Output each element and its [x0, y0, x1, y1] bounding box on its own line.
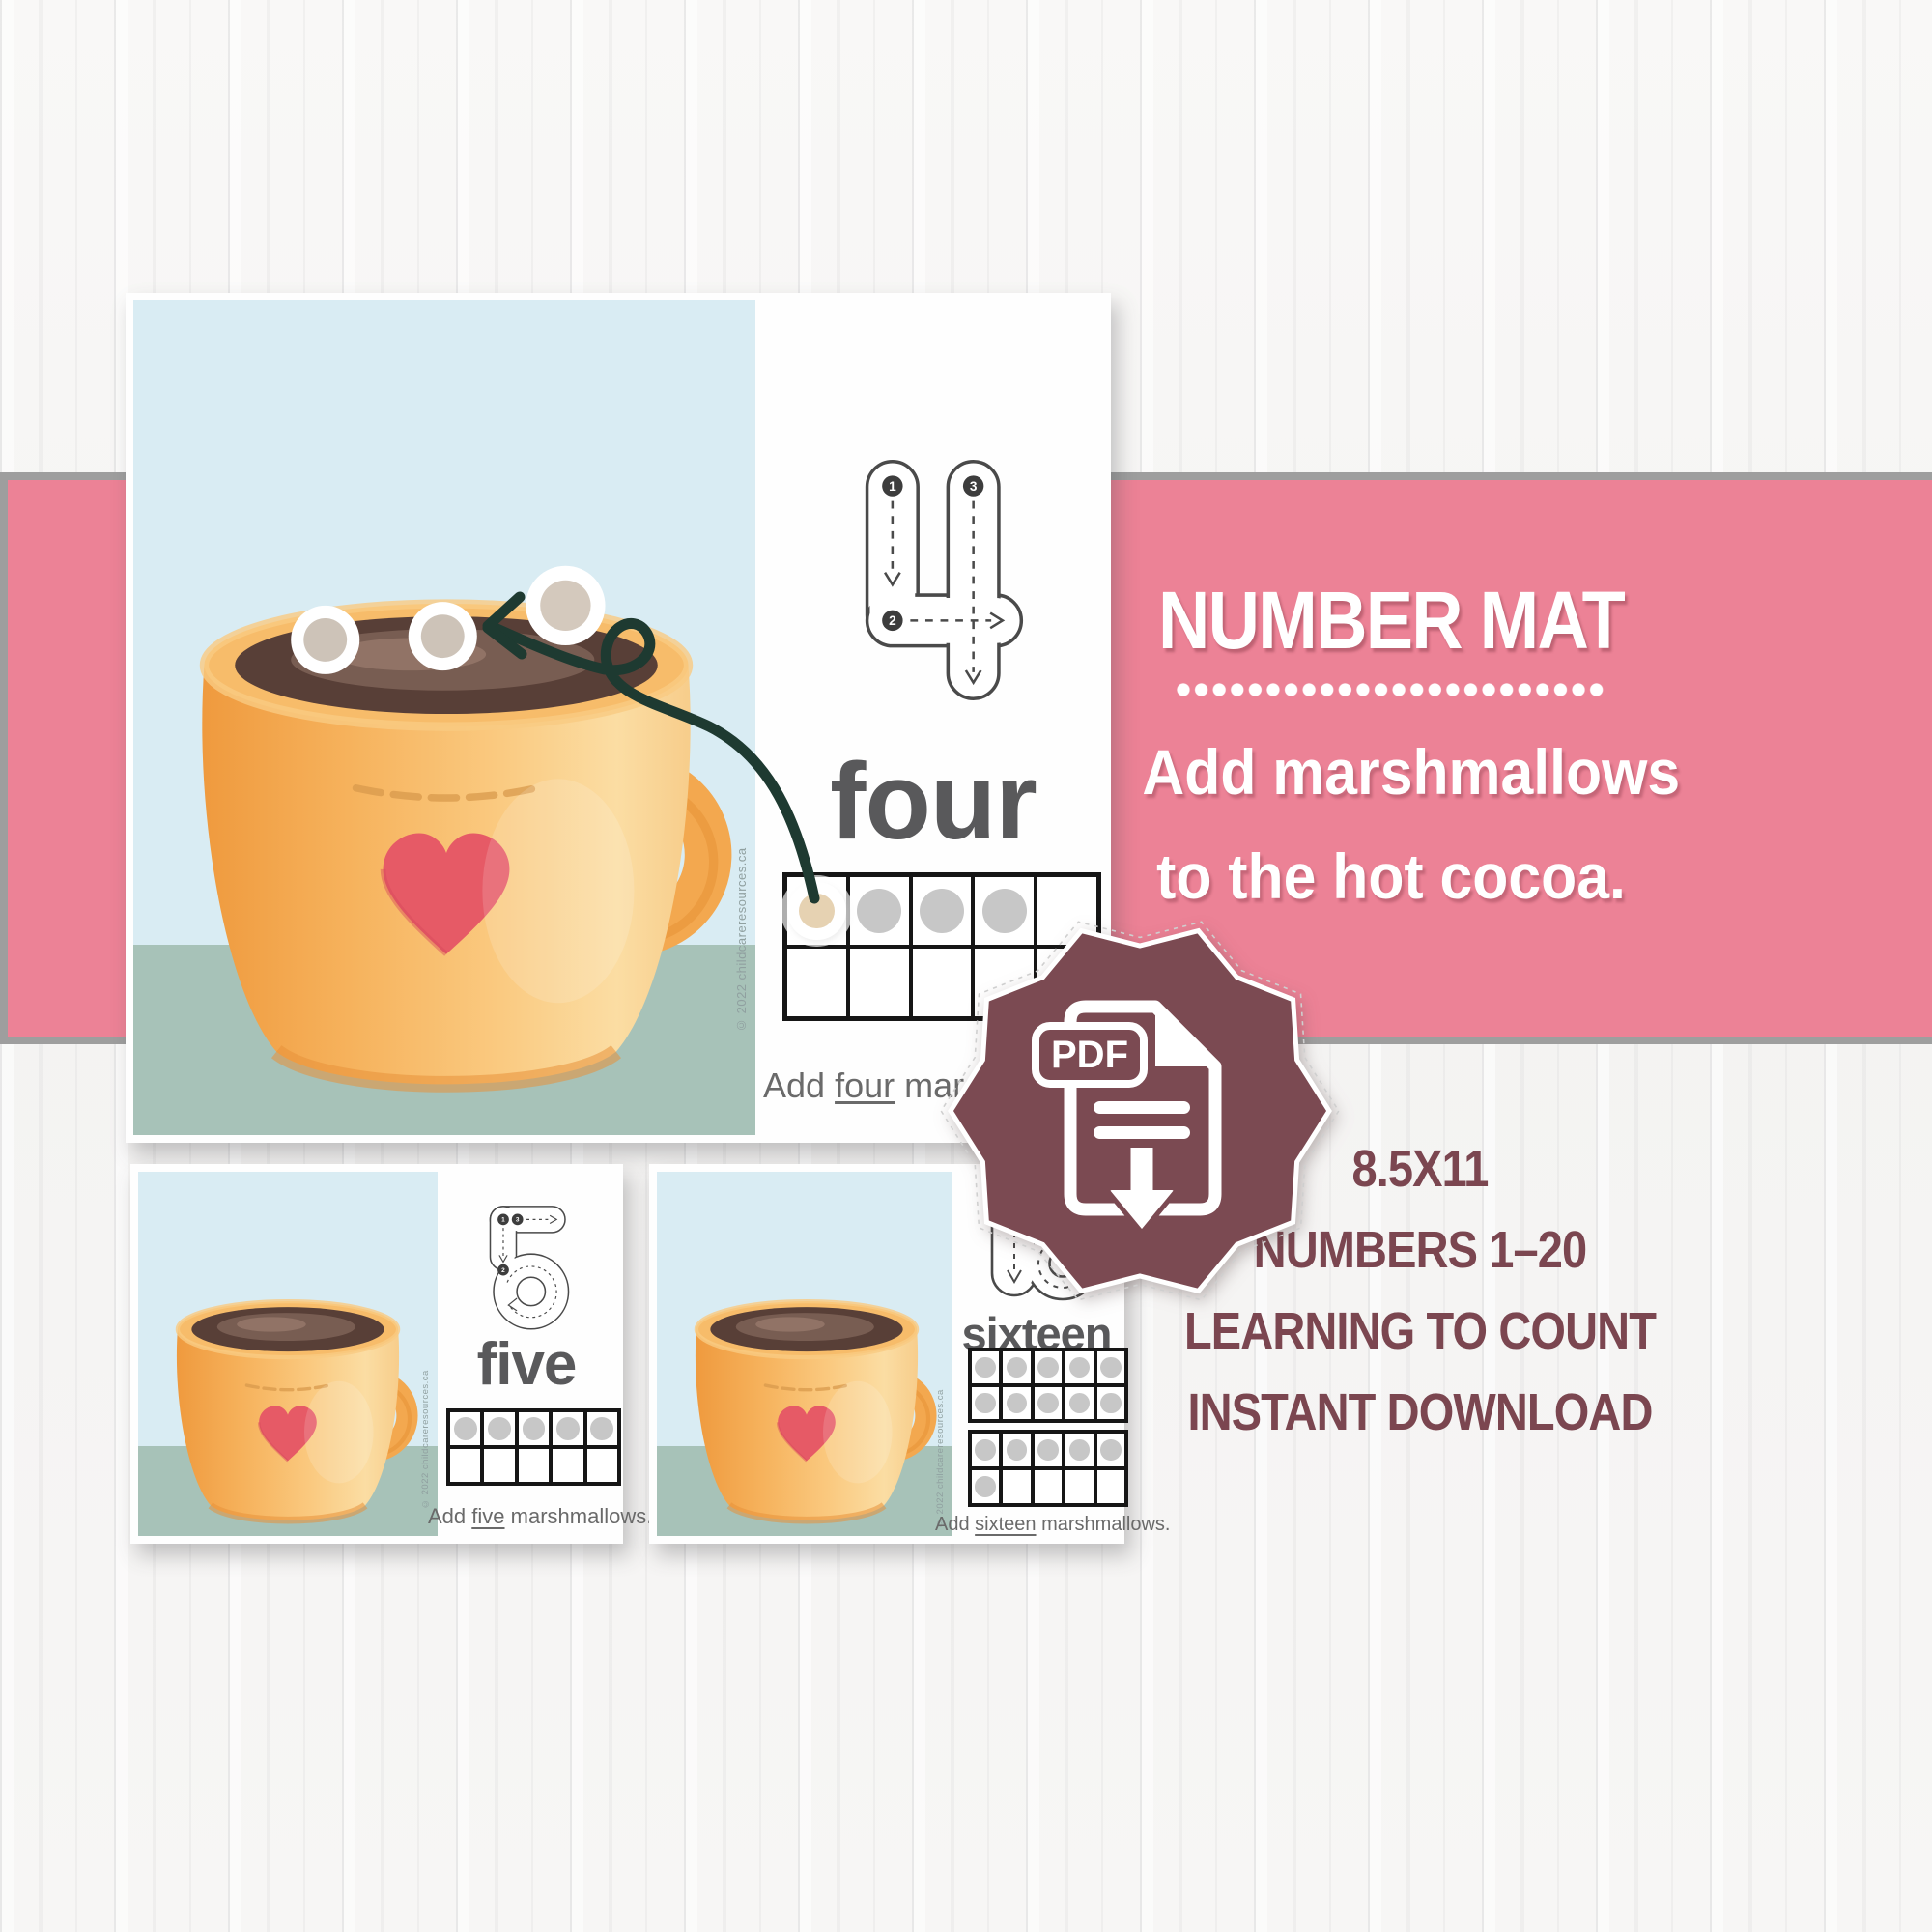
- stroke-order-3: 3: [970, 479, 978, 494]
- instruction-number-word: five: [471, 1504, 504, 1528]
- counter-dot: [1037, 1357, 1059, 1378]
- ten-frame-cell: [785, 947, 848, 1018]
- ten-frame-cell: [1064, 1468, 1094, 1505]
- counter-dot: [1007, 1439, 1028, 1461]
- ten-frame-cell: [1095, 1432, 1126, 1468]
- number-word-five: five: [438, 1330, 615, 1399]
- dotted-separator: [1176, 682, 1606, 697]
- stroke-order-3: 3: [516, 1217, 520, 1224]
- pdf-download-badge: PDF: [918, 898, 1362, 1323]
- copyright-note: © 2022 childcareresources.ca: [935, 1381, 946, 1536]
- stroke-order-2: 2: [501, 1267, 505, 1274]
- counter-dot: [590, 1417, 613, 1440]
- counter-dot: [975, 1439, 996, 1461]
- counter-dot: [1069, 1357, 1091, 1378]
- ten-frame-cell: [970, 1432, 1001, 1468]
- instruction-prefix: Add: [935, 1514, 975, 1535]
- counter-dot: [975, 1357, 996, 1378]
- banner-subtitle-line1: Add marshmallows: [1142, 740, 1639, 804]
- instruction-text-five: Add five marshmallows.: [428, 1504, 625, 1529]
- ten-frame-sixteen-2: [968, 1430, 1128, 1507]
- counter-dot: [523, 1417, 546, 1440]
- ten-frame-cell: [1001, 1350, 1032, 1385]
- ten-frame-cell: [585, 1410, 619, 1447]
- traceable-numeral-4: 1 2 3: [848, 452, 1037, 706]
- ten-frame-cell: [1095, 1350, 1126, 1385]
- ten-frame-sixteen-1: [968, 1348, 1128, 1423]
- pdf-label: PDF: [1051, 1034, 1128, 1076]
- ten-frame-cell: [1001, 1432, 1032, 1468]
- cocoa-mug-illustration: [148, 1264, 428, 1535]
- instruction-text-sixteen: Add sixteen marshmallows.: [935, 1514, 1132, 1536]
- ten-frame-cell: [1001, 1385, 1032, 1421]
- counter-dot: [1100, 1439, 1122, 1461]
- counter-dot: [1037, 1439, 1059, 1461]
- instruction-number-word: four: [835, 1065, 895, 1105]
- counter-dot: [1100, 1357, 1122, 1378]
- counter-dot: [1100, 1393, 1122, 1414]
- ten-frame-cell: [551, 1447, 584, 1484]
- ten-frame-cell: [1033, 1468, 1064, 1505]
- counter-dot: [975, 1393, 996, 1414]
- counter-dot: [1069, 1393, 1091, 1414]
- number-mat-card-five: © 2022 childcareresources.ca 1 2: [130, 1164, 623, 1544]
- instruction-prefix: Add: [428, 1504, 471, 1528]
- instruction-suffix: marshmallows.: [505, 1504, 653, 1528]
- ten-frame-cell: [1064, 1385, 1094, 1421]
- ten-frame-cell: [1064, 1350, 1094, 1385]
- counter-dot: [857, 889, 901, 933]
- promo-image: NUMBER MAT Add marshmallows to the hot c…: [0, 0, 1932, 1932]
- counter-dot: [1007, 1393, 1028, 1414]
- ten-frame-cell: [517, 1447, 551, 1484]
- counter-dot: [1069, 1439, 1091, 1461]
- counter-dot: [454, 1417, 477, 1440]
- instruction-number-word: sixteen: [975, 1514, 1036, 1535]
- ten-frame-cell: [1064, 1432, 1094, 1468]
- instruction-prefix: Add: [763, 1065, 835, 1105]
- ten-frame-cell: [551, 1410, 584, 1447]
- ten-frame-cell: [448, 1447, 482, 1484]
- ten-frame-cell: [1095, 1385, 1126, 1421]
- counter-dot: [488, 1417, 511, 1440]
- ten-frame-cell: [1033, 1385, 1064, 1421]
- feature-download: INSTANT DOWNLOAD: [1177, 1372, 1664, 1453]
- ten-frame-cell: [1033, 1432, 1064, 1468]
- ten-frame-cell: [1033, 1350, 1064, 1385]
- banner-text-block: NUMBER MAT Add marshmallows to the hot c…: [1121, 580, 1662, 908]
- stroke-order-1: 1: [889, 479, 896, 494]
- ten-frame-cell: [1001, 1468, 1032, 1505]
- counter-dot: [1037, 1393, 1059, 1414]
- counter-dot: [1007, 1357, 1028, 1378]
- instruction-suffix: marshmallows.: [1037, 1514, 1171, 1535]
- ten-frame-cell: [517, 1410, 551, 1447]
- ten-frame-cell: [848, 947, 911, 1018]
- cocoa-scene-sixteen: [657, 1172, 952, 1536]
- banner-title: NUMBER MAT: [1153, 580, 1630, 661]
- marshmallow-move-arrow: [435, 541, 860, 947]
- ten-frame-cell: [448, 1410, 482, 1447]
- cocoa-mug-illustration: [667, 1264, 947, 1535]
- traceable-numeral-5: 1 2 3: [481, 1201, 578, 1334]
- cocoa-scene-five: [138, 1172, 438, 1536]
- ten-frame-cell: [970, 1350, 1001, 1385]
- ten-frame-cell: [970, 1468, 1001, 1505]
- ten-frame-cell: [482, 1410, 516, 1447]
- counter-dot: [975, 1476, 996, 1497]
- stroke-order-2: 2: [889, 613, 896, 628]
- copyright-note: © 2022 childcareresources.ca: [420, 1352, 431, 1526]
- stroke-order-1: 1: [501, 1217, 505, 1224]
- ten-frame-cell: [482, 1447, 516, 1484]
- ten-frame-cell: [585, 1447, 619, 1484]
- counter-dot: [556, 1417, 580, 1440]
- ten-frame-cell: [970, 1385, 1001, 1421]
- ten-frame-cell: [1095, 1468, 1126, 1505]
- ten-frame-five: [446, 1408, 621, 1486]
